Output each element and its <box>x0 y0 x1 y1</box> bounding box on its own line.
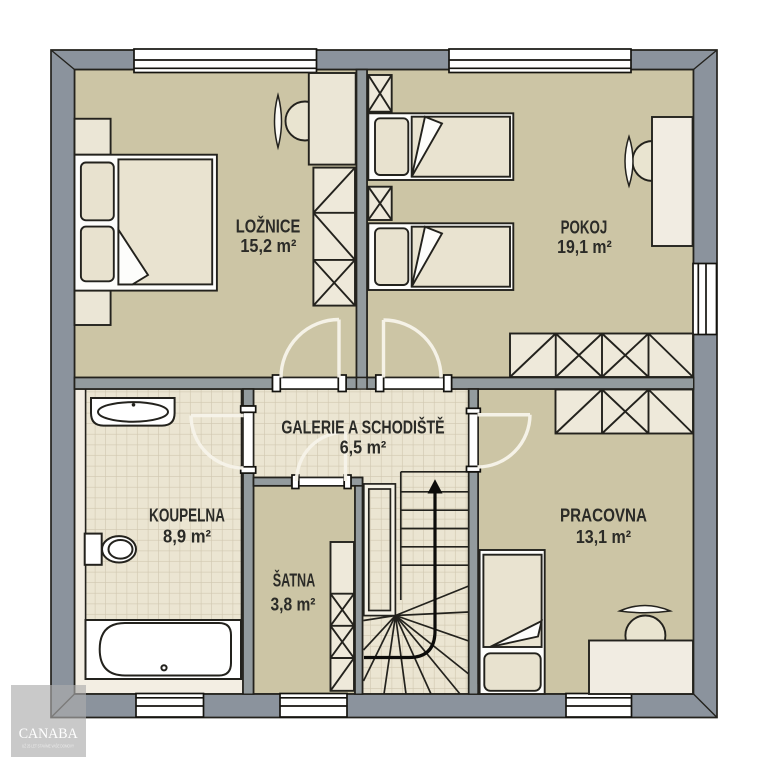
svg-text:3,8 m²: 3,8 m² <box>271 595 316 615</box>
svg-text:LOŽNICE: LOŽNICE <box>236 216 301 237</box>
svg-text:POKOJ: POKOJ <box>561 218 608 238</box>
svg-text:ŠATNA: ŠATNA <box>273 570 316 591</box>
svg-text:6,5 m²: 6,5 m² <box>340 438 387 458</box>
svg-text:13,1 m²: 13,1 m² <box>576 527 631 547</box>
svg-text:15,2 m²: 15,2 m² <box>240 236 296 256</box>
svg-text:UŽ 25 LET STAVÍME VAŠE DOMOVY: UŽ 25 LET STAVÍME VAŠE DOMOVY <box>22 744 74 749</box>
svg-text:KOUPELNA: KOUPELNA <box>149 506 225 526</box>
svg-text:8,9 m²: 8,9 m² <box>163 527 211 547</box>
svg-text:19,1 m²: 19,1 m² <box>557 237 612 257</box>
svg-text:PRACOVNA: PRACOVNA <box>560 505 647 525</box>
svg-text:GALERIE A SCHODIŠTĚ: GALERIE A SCHODIŠTĚ <box>281 417 444 438</box>
svg-text:CANABA: CANABA <box>19 726 79 742</box>
